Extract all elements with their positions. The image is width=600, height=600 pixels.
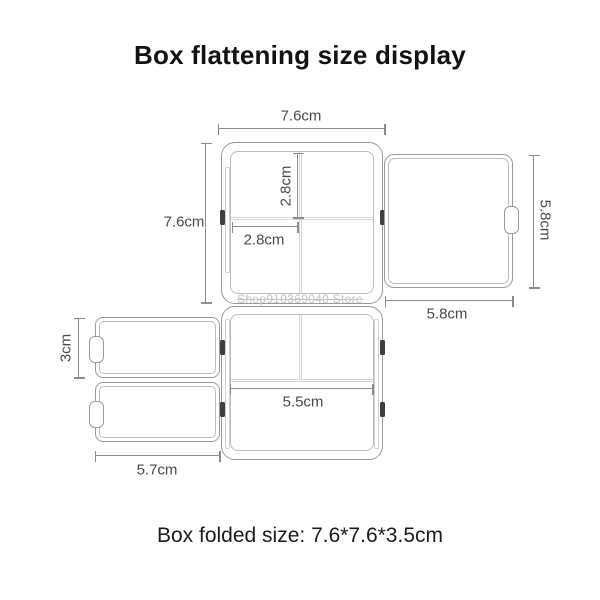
latch-clip-base-right-upper xyxy=(380,340,385,355)
dimension-line-main-height xyxy=(205,143,206,303)
dimension-label-main-height: 7.6cm xyxy=(164,215,205,230)
side-flap-top-inner xyxy=(99,321,216,374)
watermark: Shop910369040 Store xyxy=(0,292,600,306)
base-panel xyxy=(221,306,383,460)
page-title: Box flattening size display xyxy=(0,40,600,71)
main-panel xyxy=(221,142,383,304)
latch-clip-base-left-upper xyxy=(220,340,225,355)
dimension-label-main-width: 7.6cm xyxy=(281,109,322,124)
main-panel-inner xyxy=(230,151,374,294)
dimension-line-cell-height xyxy=(297,153,298,218)
box-size-diagram: Box flattening size display xyxy=(0,0,600,600)
dimension-line-main-width xyxy=(218,128,385,129)
dimension-label-base-inner-width: 5.5cm xyxy=(283,395,324,410)
dimension-label-flap-width: 5.7cm xyxy=(137,463,178,478)
dimension-line-base-inner-width xyxy=(230,388,373,389)
latch-clip-left xyxy=(220,210,225,225)
dimension-line-lid-height xyxy=(533,155,534,288)
main-panel-vertical-divider xyxy=(299,152,302,293)
base-panel-inner xyxy=(230,314,374,451)
side-flap-top-tab xyxy=(89,336,104,363)
dimension-line-flap-width xyxy=(95,455,220,456)
side-flap-bottom-tab xyxy=(89,401,104,428)
right-lid-inner xyxy=(388,158,509,284)
side-flap-bottom xyxy=(95,382,220,442)
latch-clip-base-right-lower xyxy=(380,402,385,417)
dimension-label-cell-height: 2.8cm xyxy=(279,166,294,207)
base-panel-vertical-divider xyxy=(299,315,302,379)
dimension-label-lid-height: 5.8cm xyxy=(538,200,553,241)
side-flap-bottom-inner xyxy=(99,386,216,438)
dimension-line-flap-height xyxy=(78,318,79,378)
folded-size-caption: Box folded size: 7.6*7.6*3.5cm xyxy=(0,524,600,548)
base-panel-horizontal-divider xyxy=(231,379,373,382)
dimension-label-cell-width: 2.8cm xyxy=(244,233,285,248)
latch-clip-base-left-lower xyxy=(220,402,225,417)
side-flap-top xyxy=(95,317,220,378)
right-lid-panel xyxy=(384,154,513,288)
right-lid-tab xyxy=(504,206,519,234)
dimension-label-flap-height: 3cm xyxy=(59,334,74,362)
dimension-label-lid-width: 5.8cm xyxy=(427,307,468,322)
dimension-line-cell-width xyxy=(232,226,298,227)
base-panel-hinge-right xyxy=(374,319,379,449)
